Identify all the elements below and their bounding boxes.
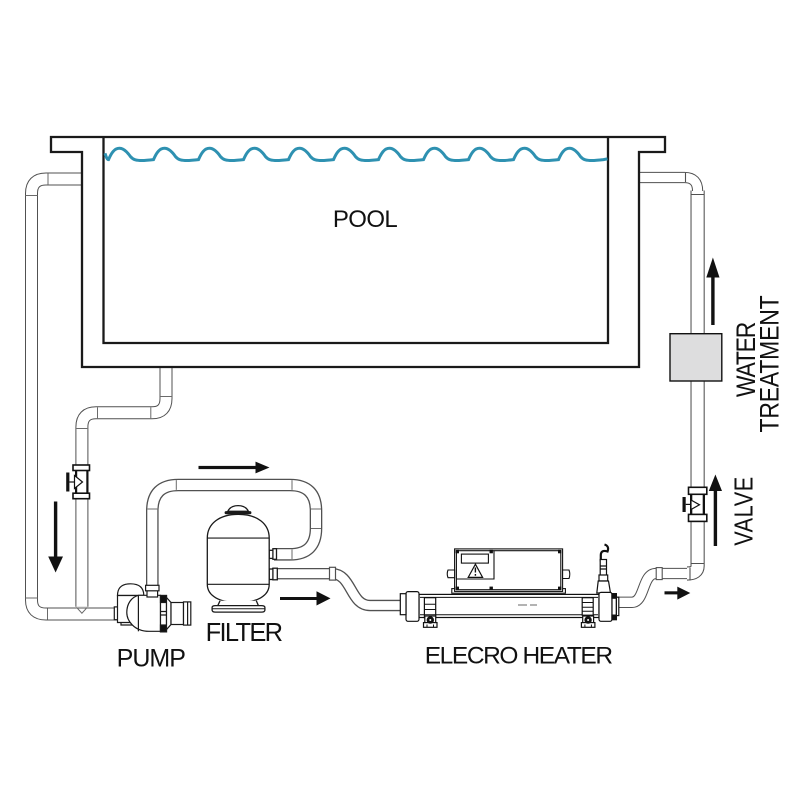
svg-text:POOL: POOL (333, 206, 398, 233)
svg-text:PUMP: PUMP (117, 644, 186, 672)
svg-text:ELECRO HEATER: ELECRO HEATER (425, 643, 613, 670)
svg-text:TREATMENT: TREATMENT (755, 296, 785, 433)
svg-text:VALVE: VALVE (731, 476, 759, 546)
svg-text:FILTER: FILTER (206, 619, 283, 647)
